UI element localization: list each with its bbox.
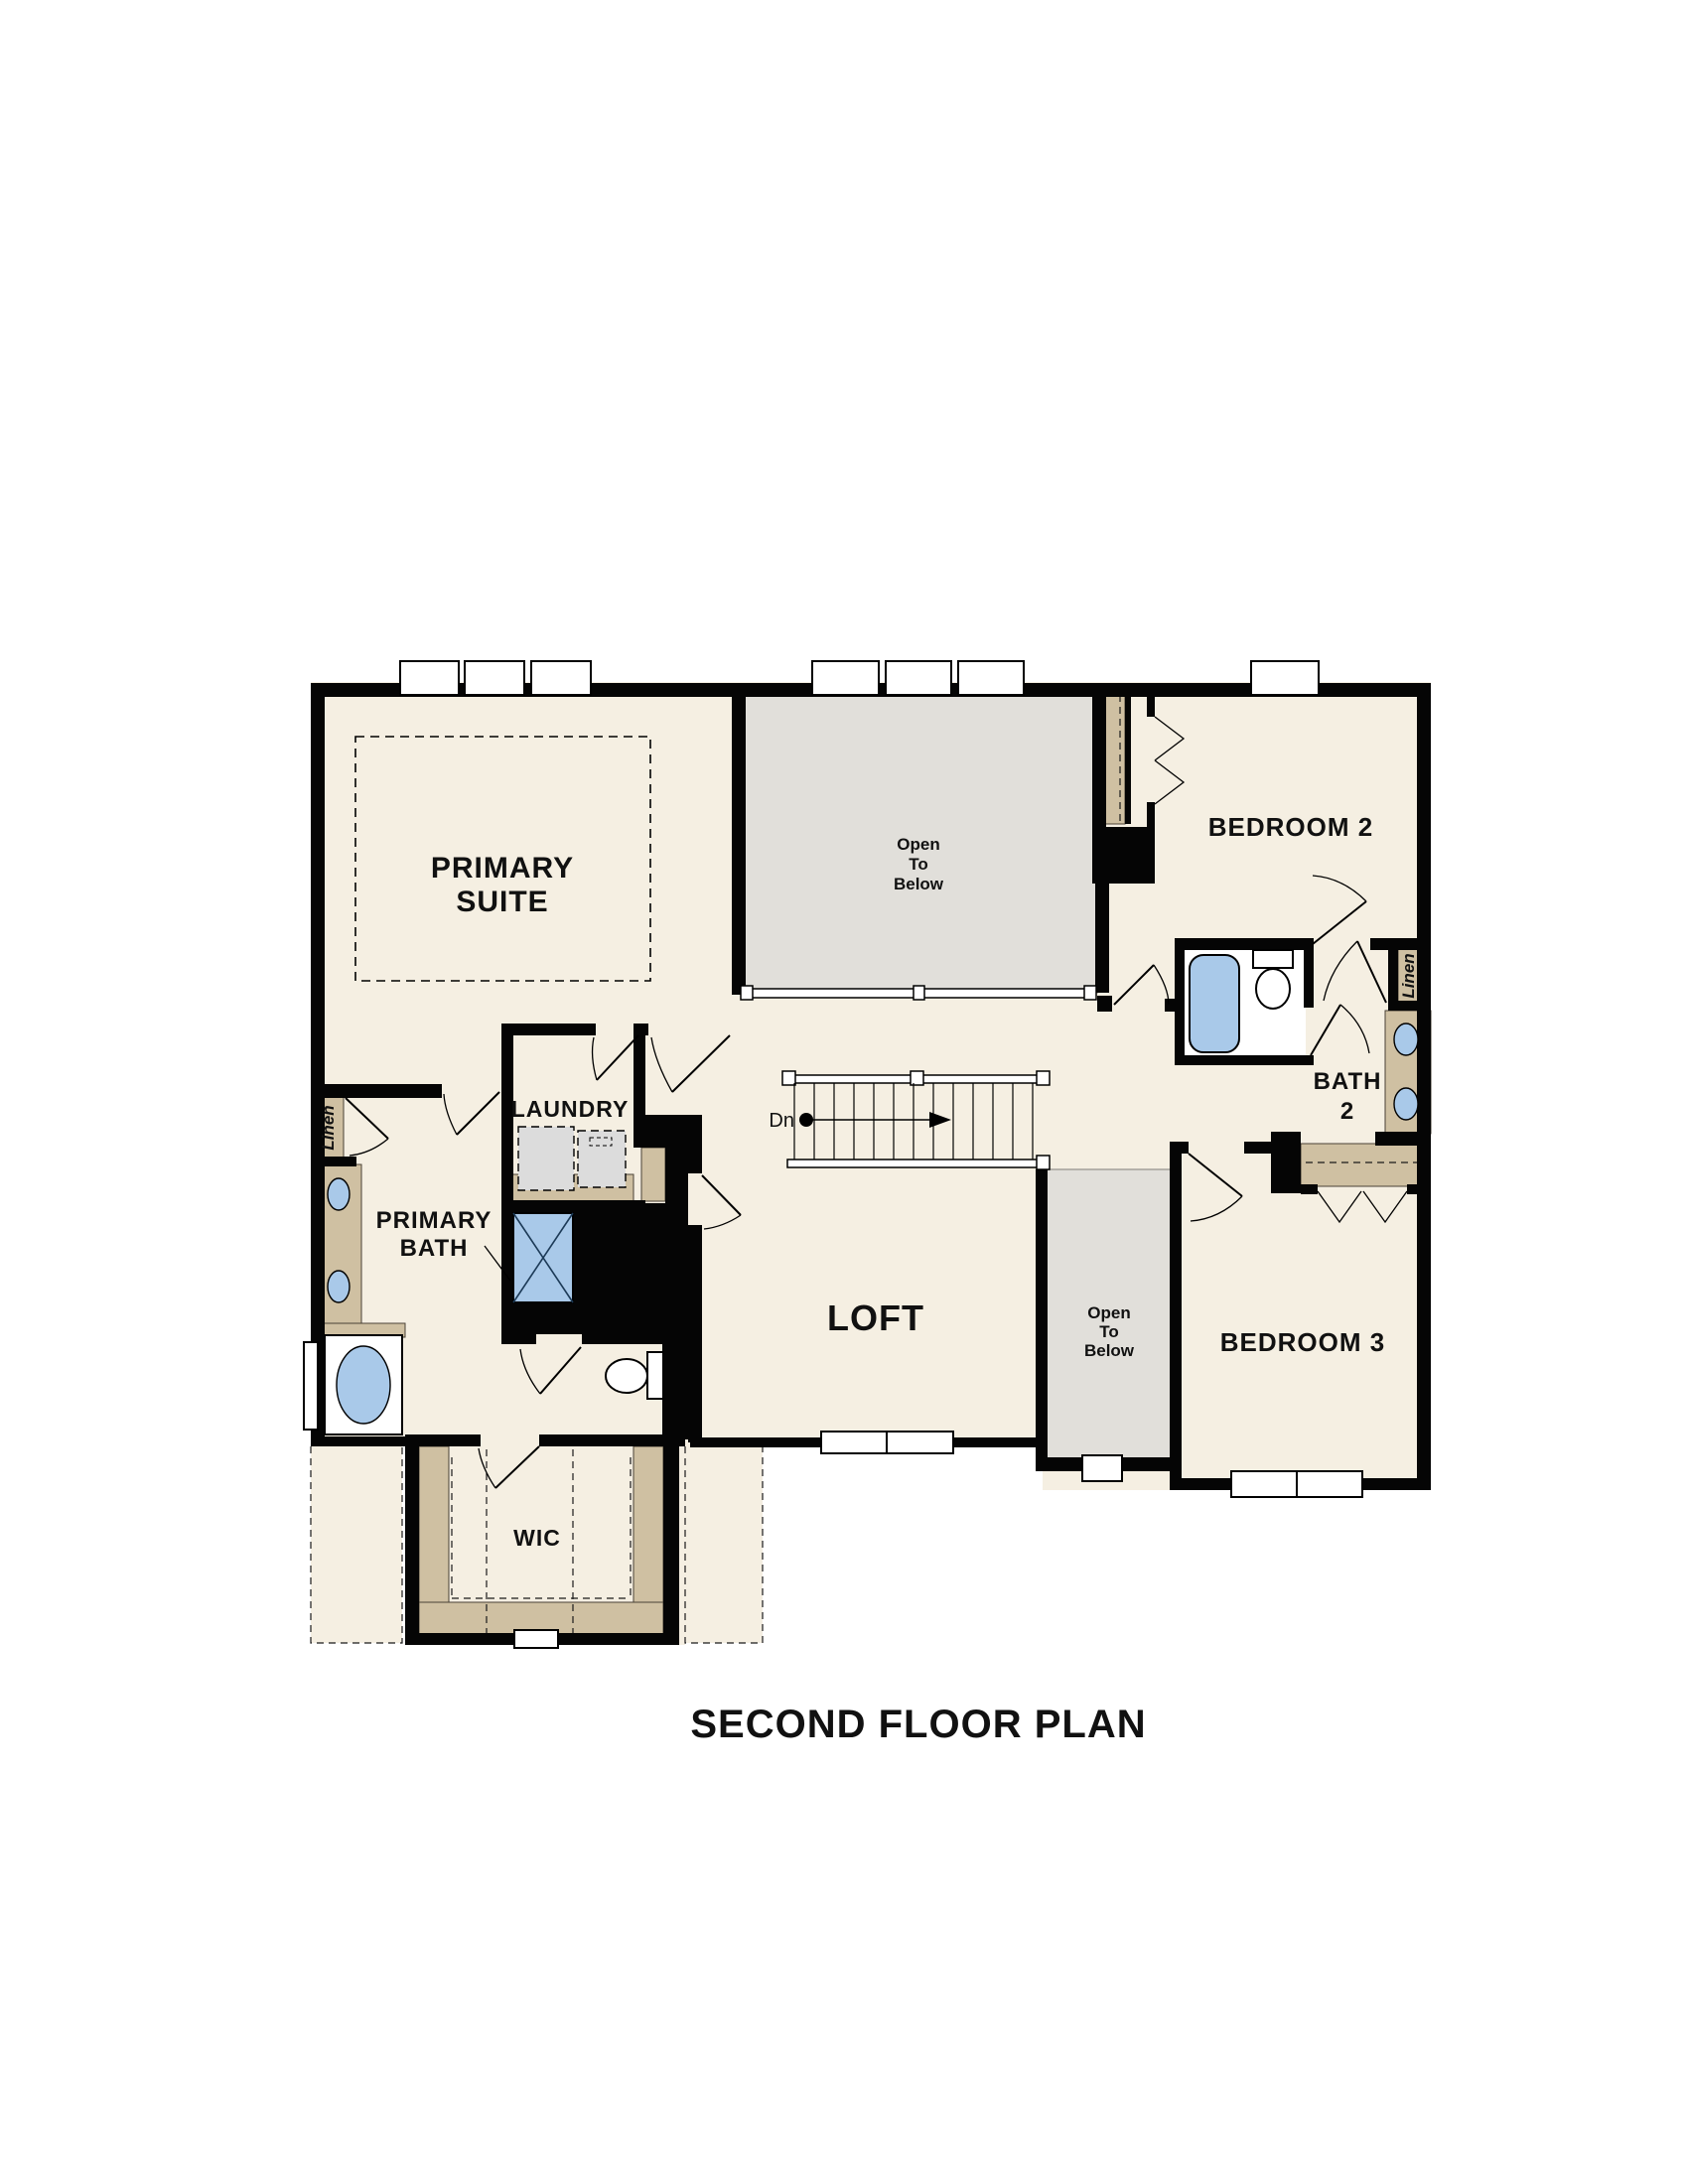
primary-bath-tub bbox=[325, 1335, 402, 1434]
window bbox=[821, 1432, 887, 1453]
wic-label: WIC bbox=[513, 1525, 561, 1551]
primary-bath-shower bbox=[513, 1213, 573, 1302]
toilet-room-door-opening bbox=[536, 1334, 582, 1346]
window bbox=[1231, 1471, 1297, 1497]
bath2-label-line2: 2 bbox=[1340, 1098, 1354, 1125]
open-to-below-center-line2: To bbox=[1099, 1322, 1119, 1341]
loft-closet-door-opening bbox=[688, 1173, 702, 1225]
open-to-below-top-line3: Below bbox=[894, 875, 944, 893]
linen-left-label: Linen bbox=[319, 1105, 338, 1150]
floor-plan-page: Dn bbox=[0, 0, 1688, 2184]
window bbox=[886, 661, 951, 695]
open-to-below-center-line3: Below bbox=[1084, 1341, 1135, 1360]
stair-rail-bottom bbox=[787, 1160, 1043, 1167]
window bbox=[958, 661, 1024, 695]
bedroom3-label: BEDROOM 3 bbox=[1220, 1327, 1385, 1357]
window bbox=[304, 1342, 318, 1430]
primary-suite-label-line2: SUITE bbox=[456, 886, 548, 918]
primary-bath-label-line2: BATH bbox=[400, 1235, 469, 1262]
window bbox=[514, 1630, 558, 1648]
bedroom3-closet-shelf bbox=[1301, 1144, 1427, 1186]
window bbox=[531, 661, 591, 695]
window bbox=[400, 661, 459, 695]
primary-suite-label-line1: PRIMARY bbox=[431, 852, 574, 885]
laundry-label: LAUNDRY bbox=[511, 1096, 630, 1122]
window bbox=[812, 661, 879, 695]
bath2-toilet bbox=[1253, 950, 1293, 1009]
plan-title: SECOND FLOOR PLAN bbox=[690, 1703, 1146, 1746]
open-to-below-center-line1: Open bbox=[1087, 1303, 1130, 1322]
bedroom2-label: BEDROOM 2 bbox=[1208, 812, 1373, 842]
open-to-below-top-line1: Open bbox=[897, 835, 939, 854]
linen-right-label: Linen bbox=[1399, 953, 1418, 998]
floor-plan-canvas: Dn bbox=[0, 0, 1688, 2184]
roof-below-right bbox=[685, 1439, 763, 1643]
window bbox=[1082, 1455, 1122, 1481]
laundry-appliances bbox=[518, 1127, 626, 1190]
bath2-tub bbox=[1190, 955, 1239, 1052]
bath2-label-line1: BATH bbox=[1314, 1068, 1382, 1095]
primary-bath-label-line1: PRIMARY bbox=[376, 1207, 492, 1234]
hall-closet-shelf bbox=[641, 1148, 665, 1201]
window bbox=[465, 661, 524, 695]
window bbox=[1251, 661, 1319, 695]
roof-below-left bbox=[311, 1439, 402, 1643]
stair-down-label: Dn bbox=[769, 1110, 794, 1132]
window bbox=[1297, 1471, 1362, 1497]
open-to-below-top-line2: To bbox=[909, 855, 928, 874]
window bbox=[887, 1432, 953, 1453]
loft-label: LOFT bbox=[827, 1297, 924, 1338]
